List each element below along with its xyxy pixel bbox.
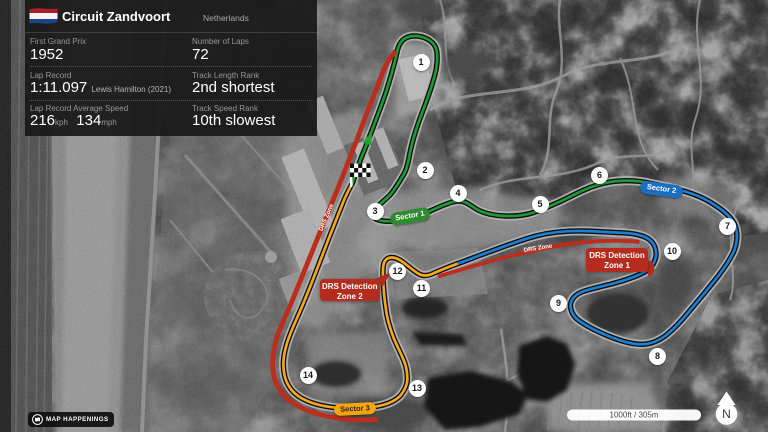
svg-text:1000ft / 305m: 1000ft / 305m bbox=[610, 411, 659, 420]
svg-text:N: N bbox=[722, 407, 731, 421]
